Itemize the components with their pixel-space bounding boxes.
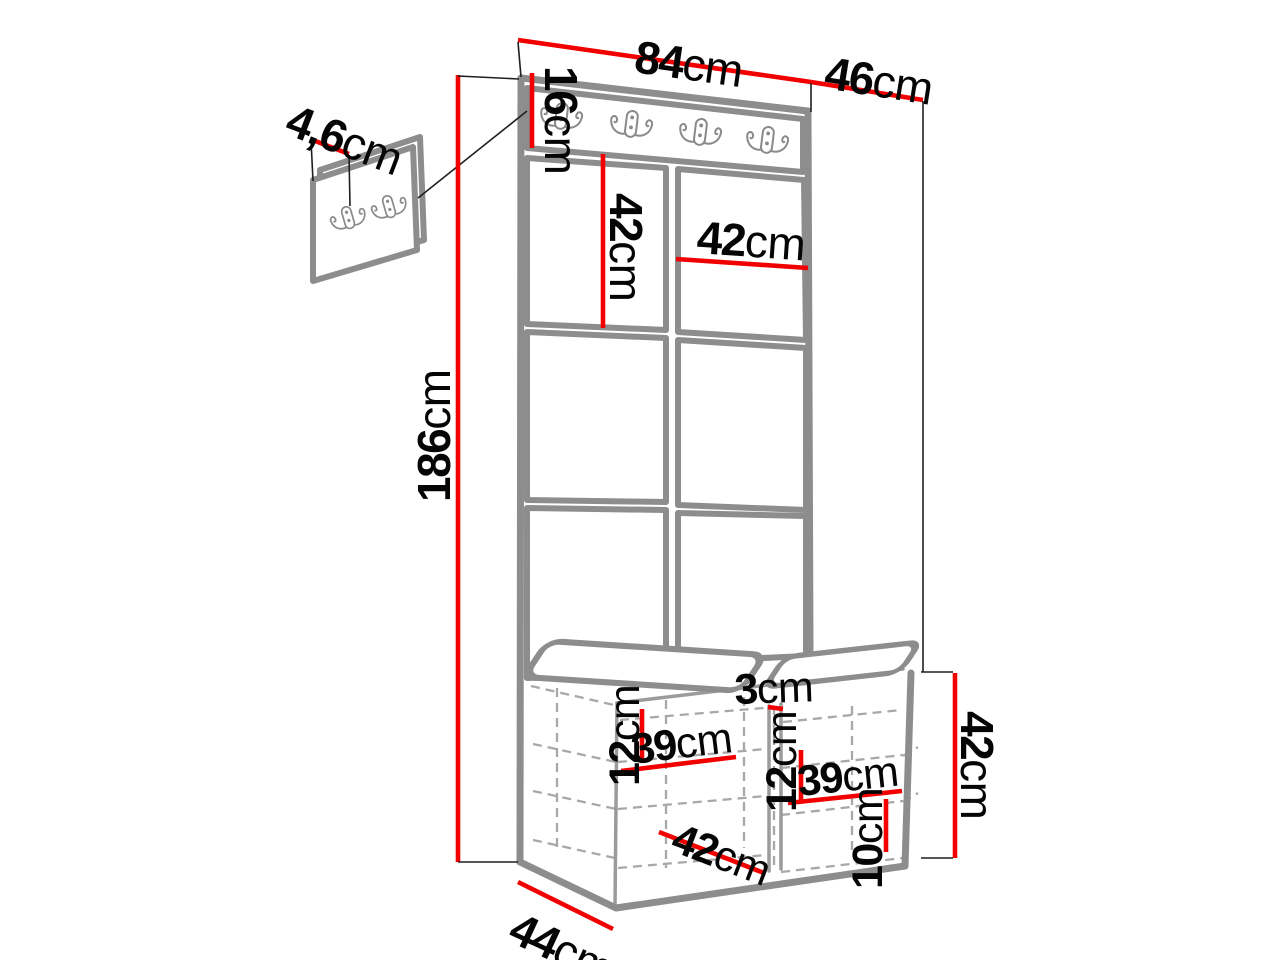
label-bench-depth: 44cm: [502, 902, 622, 960]
label-total-height: 186cm: [408, 369, 460, 502]
label-tile-width: 42cm: [695, 211, 807, 270]
diagram-canvas: 84cm 46cm 4,6cm 16cm 42cm 42cm 186cm 3cm…: [0, 0, 1280, 960]
label-bench-opening: 42cm: [665, 815, 777, 896]
label-tile-height: 42cm: [600, 193, 652, 302]
furniture-dimension-diagram: 84cm 46cm 4,6cm 16cm 42cm 42cm 186cm 3cm…: [0, 0, 1280, 960]
label-depth-top: 46cm: [821, 47, 936, 115]
label-plinth-height: 10cm: [844, 788, 892, 889]
label-bench-height: 42cm: [951, 711, 1003, 820]
upholstered-panel: [527, 332, 666, 502]
upholstered-panel: [678, 340, 806, 510]
label-seat-gap: 3cm: [734, 663, 814, 714]
bench-right-edge: [905, 673, 911, 866]
upholstered-panel: [678, 513, 806, 662]
label-rail-height: 16cm: [535, 66, 587, 175]
label-width-top: 84cm: [632, 30, 747, 97]
wall-left-edge: [520, 78, 521, 862]
callout-line: [418, 111, 527, 198]
